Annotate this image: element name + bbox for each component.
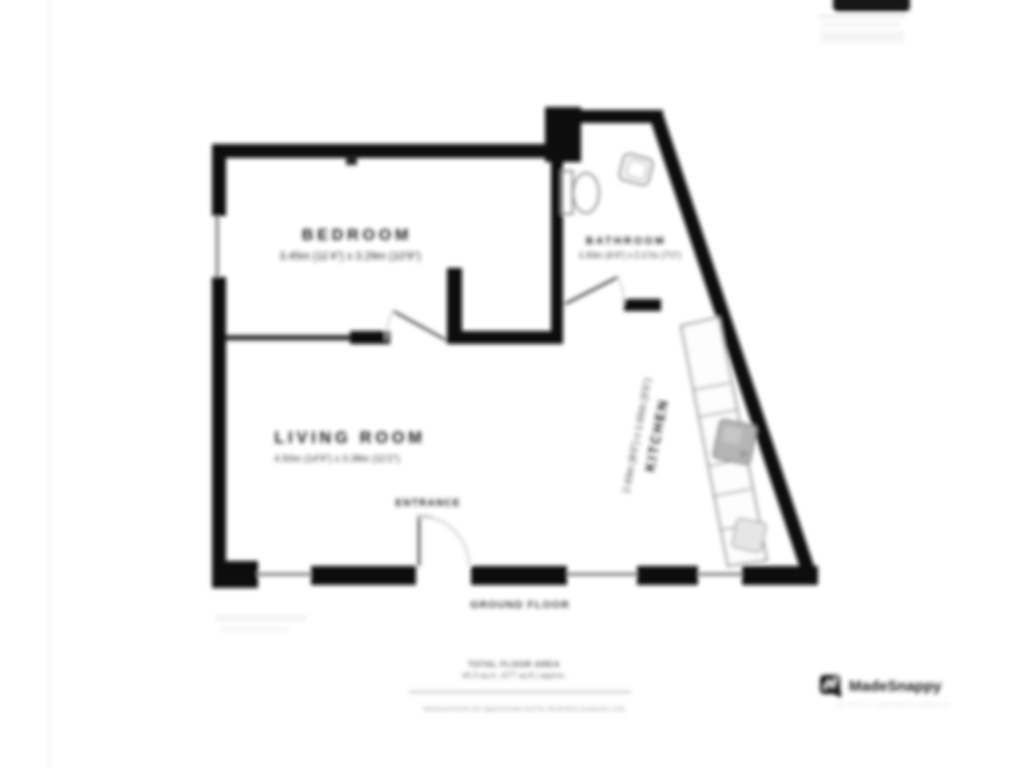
svg-text:360 VIRTUAL TOURS AND FLOORPLA: 360 VIRTUAL TOURS AND FLOORPLANS [835,703,950,709]
svg-text:LIVING ROOM: LIVING ROOM [274,429,425,447]
svg-text:ENTRANCE: ENTRANCE [395,498,460,509]
svg-text:4.50m (14'9") x 3.38m (11'1"): 4.50m (14'9") x 3.38m (11'1") [274,454,399,464]
svg-text:3.45m (11'4") x 3.29m (10'9"): 3.45m (11'4") x 3.29m (10'9") [279,251,420,263]
svg-text:Measurements are approximate a: Measurements are approximate and for ill… [423,706,625,713]
svg-text:1.93m (6'4") x 2.17m (7'1"): 1.93m (6'4") x 2.17m (7'1") [579,251,681,260]
svg-text:BEDROOM: BEDROOM [302,227,412,244]
svg-text:1.2m: 1.2m [416,512,433,521]
svg-text:GROUND FLOOR: GROUND FLOOR [470,599,570,611]
svg-text:44.3 sq.m. (477 sq.ft.) approx: 44.3 sq.m. (477 sq.ft.) approx. [462,671,566,680]
svg-text:TOTAL FLOOR AREA: TOTAL FLOOR AREA [468,659,560,669]
svg-text:BATHROOM: BATHROOM [586,235,666,247]
svg-text:MadeSnappy: MadeSnappy [849,678,942,695]
